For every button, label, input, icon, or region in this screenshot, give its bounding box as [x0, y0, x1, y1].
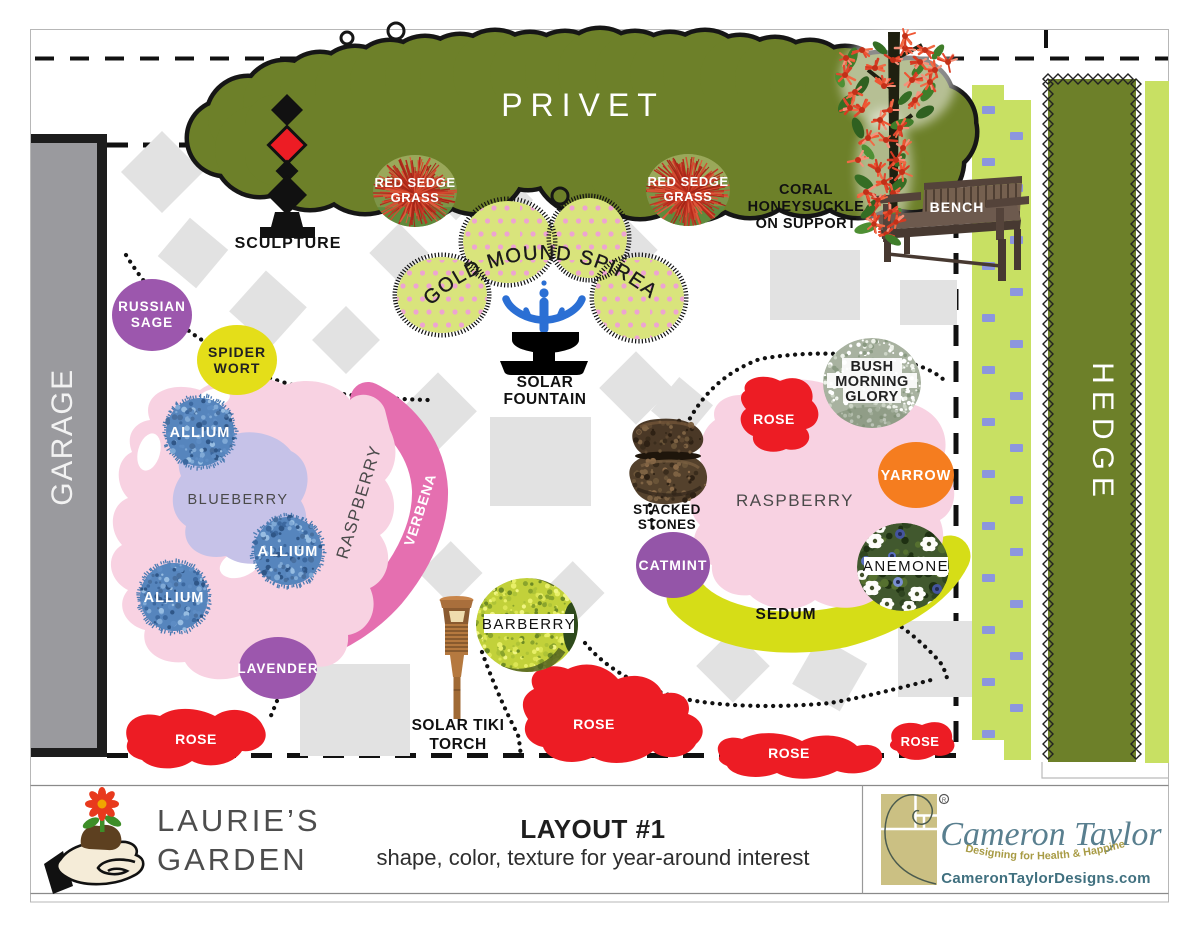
svg-text:ROSE: ROSE [573, 716, 615, 732]
svg-text:SPIDER: SPIDER [208, 344, 266, 360]
svg-text:ALLIUM: ALLIUM [170, 425, 231, 441]
svg-text:STACKED: STACKED [633, 502, 701, 517]
svg-text:SOLAR TIKI: SOLAR TIKI [412, 717, 505, 734]
svg-text:R: R [942, 798, 947, 804]
svg-text:PRIVET: PRIVET [501, 87, 665, 123]
svg-text:YARROW: YARROW [881, 468, 952, 484]
svg-text:RUSSIAN: RUSSIAN [118, 299, 186, 314]
svg-text:GRASS: GRASS [664, 189, 713, 204]
svg-text:ALLIUM: ALLIUM [144, 590, 205, 606]
svg-text:ROSE: ROSE [901, 734, 940, 749]
svg-text:BUSH: BUSH [850, 359, 893, 375]
svg-text:ROSE: ROSE [175, 731, 217, 747]
svg-text:ON SUPPORT: ON SUPPORT [756, 216, 857, 232]
svg-text:CORAL: CORAL [779, 182, 833, 198]
svg-text:SOLAR: SOLAR [517, 374, 574, 391]
svg-text:RASPBERRY: RASPBERRY [736, 491, 854, 510]
svg-text:TORCH: TORCH [429, 736, 486, 753]
svg-text:RED SEDGE: RED SEDGE [374, 175, 455, 190]
svg-text:SEDUM: SEDUM [756, 606, 817, 623]
svg-text:SCULPTURE: SCULPTURE [235, 235, 342, 252]
svg-text:ANEMONE: ANEMONE [863, 558, 949, 575]
svg-text:ROSE: ROSE [768, 745, 810, 761]
svg-text:CATMINT: CATMINT [639, 557, 708, 573]
svg-text:ALLIUM: ALLIUM [258, 544, 319, 560]
svg-text:shape, color, texture for year: shape, color, texture for year-around in… [377, 845, 810, 870]
svg-text:BLUEBERRY: BLUEBERRY [187, 492, 288, 508]
svg-text:GRASS: GRASS [391, 190, 440, 205]
svg-text:MORNING: MORNING [835, 374, 909, 390]
svg-text:GARDEN: GARDEN [157, 842, 308, 877]
svg-text:GLORY: GLORY [845, 389, 899, 405]
svg-text:WORT: WORT [214, 360, 261, 376]
svg-text:RED SEDGE: RED SEDGE [647, 174, 728, 189]
svg-text:LAVENDER: LAVENDER [237, 661, 318, 676]
svg-text:CameronTaylorDesigns.com: CameronTaylorDesigns.com [941, 870, 1150, 887]
svg-text:FOUNTAIN: FOUNTAIN [504, 391, 587, 408]
svg-text:STONES: STONES [638, 517, 696, 532]
svg-text:ROSE: ROSE [753, 411, 795, 427]
svg-text:SAGE: SAGE [131, 315, 173, 330]
svg-text:LAYOUT #1: LAYOUT #1 [520, 814, 665, 844]
svg-text:HONEYSUCKLE: HONEYSUCKLE [748, 199, 865, 215]
svg-text:BENCH: BENCH [930, 199, 985, 215]
svg-text:HEDGE: HEDGE [1086, 362, 1119, 504]
svg-text:GARAGE: GARAGE [46, 368, 79, 505]
svg-text:LAURIE’S: LAURIE’S [157, 803, 321, 838]
svg-text:BARBERRY: BARBERRY [482, 616, 576, 633]
